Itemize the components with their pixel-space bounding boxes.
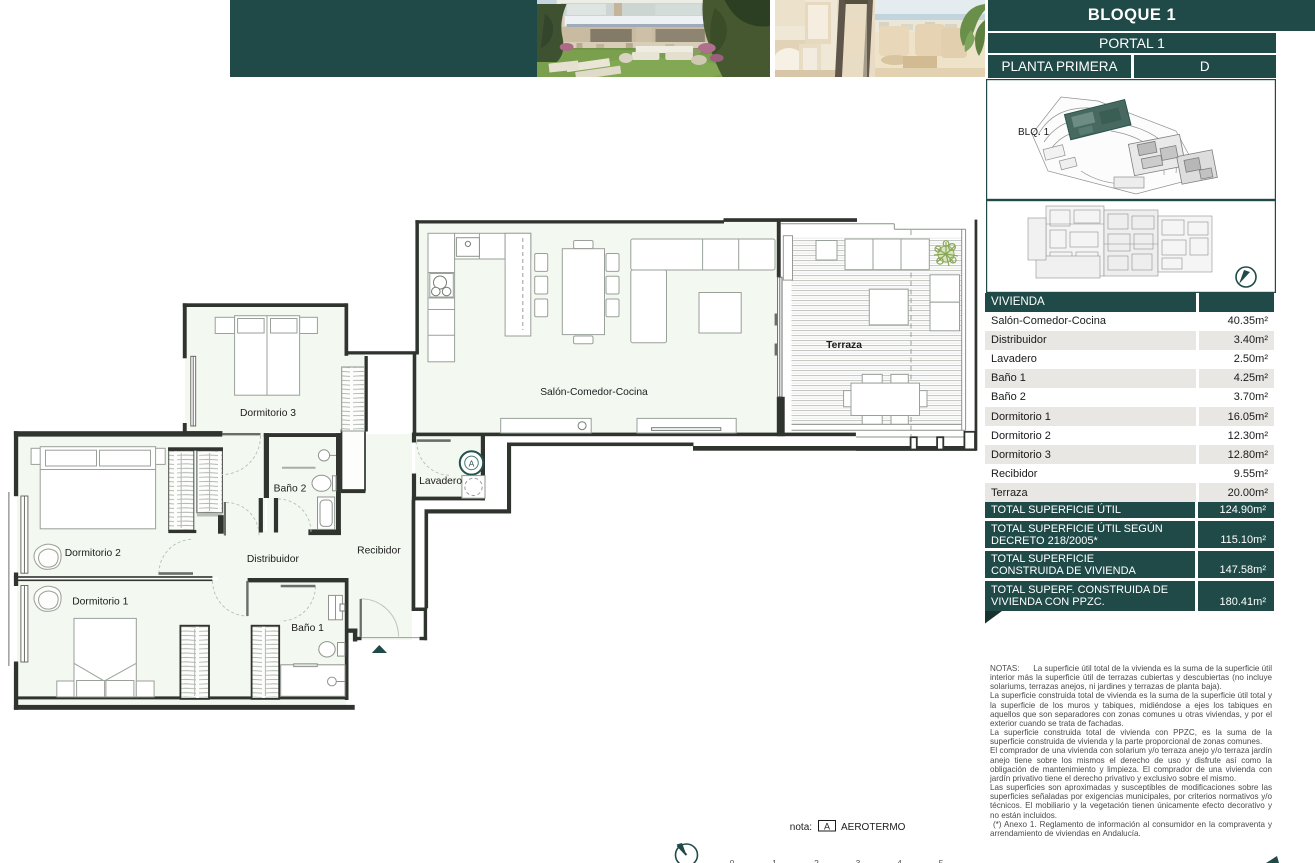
svg-text:Baño 2: Baño 2 — [274, 484, 307, 495]
svg-text:Terraza: Terraza — [826, 340, 862, 351]
svg-text:3: 3 — [856, 858, 861, 863]
svg-text:Distribuidor: Distribuidor — [247, 554, 300, 565]
svg-text:A: A — [824, 822, 830, 832]
svg-text:Dormitorio 1: Dormitorio 1 — [72, 596, 128, 607]
svg-text:4: 4 — [897, 858, 902, 863]
svg-text:nota:: nota: — [790, 822, 812, 833]
svg-text:Lavadero: Lavadero — [419, 476, 462, 487]
svg-text:2: 2 — [814, 858, 819, 863]
svg-text:Dormitorio 2: Dormitorio 2 — [65, 548, 121, 559]
svg-text:AEROTERMO: AEROTERMO — [841, 822, 906, 833]
svg-text:5: 5 — [939, 858, 944, 863]
svg-text:Dormitorio 3: Dormitorio 3 — [240, 408, 296, 419]
svg-text:0: 0 — [730, 858, 735, 863]
svg-text:A: A — [469, 458, 475, 468]
svg-text:1: 1 — [772, 858, 777, 863]
svg-text:Salón-Comedor-Cocina: Salón-Comedor-Cocina — [540, 387, 648, 398]
svg-text:Recibidor: Recibidor — [357, 546, 401, 557]
svg-text:Baño 1: Baño 1 — [291, 623, 324, 634]
